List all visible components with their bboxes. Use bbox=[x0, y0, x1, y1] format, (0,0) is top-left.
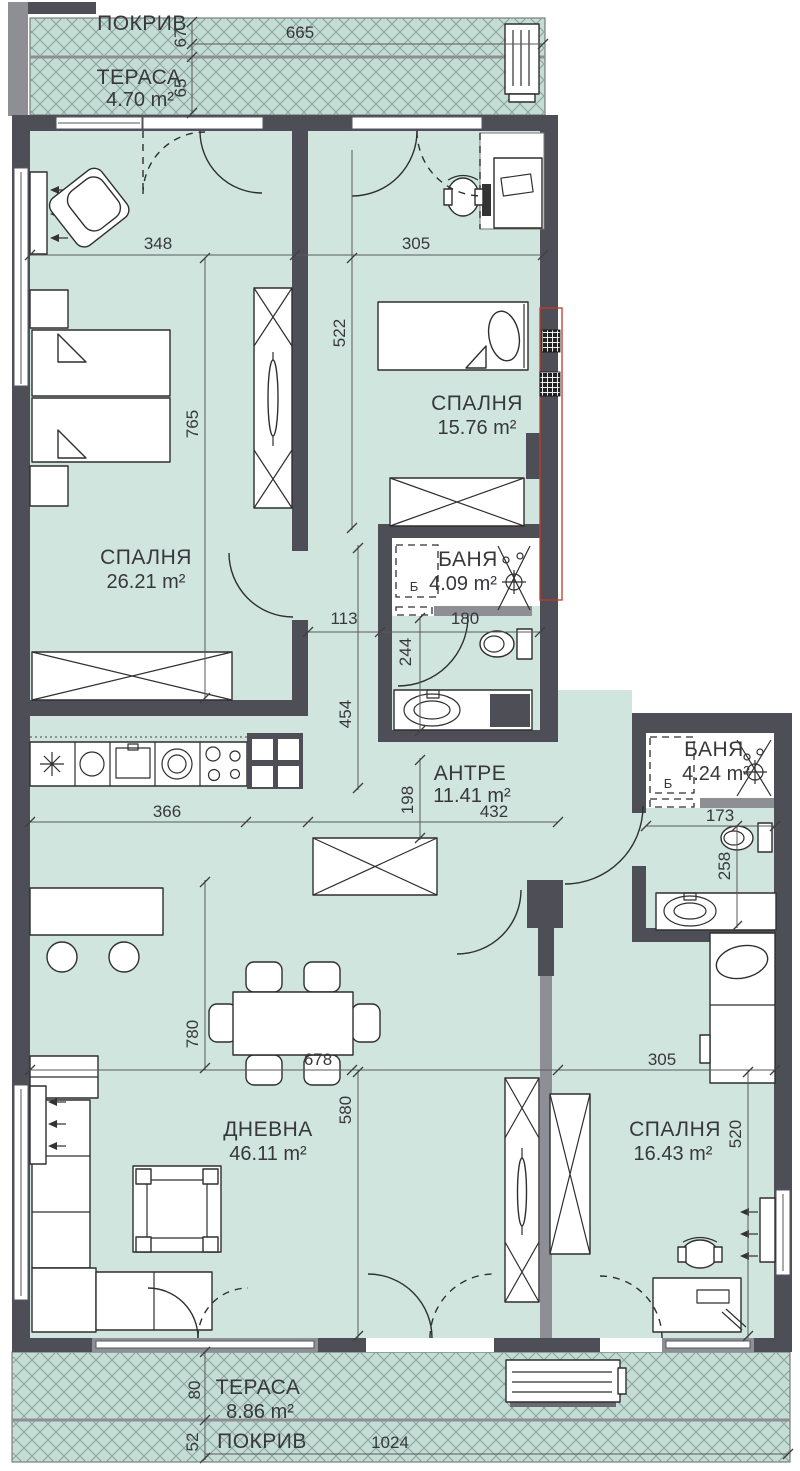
radiator-icon bbox=[30, 1086, 46, 1164]
bed-icon bbox=[378, 302, 528, 370]
dresser-icon bbox=[390, 478, 524, 526]
desk-icon bbox=[653, 1278, 746, 1332]
bed-icon bbox=[700, 933, 775, 1083]
dim-454: 454 bbox=[336, 700, 355, 728]
dim-180: 180 bbox=[451, 609, 479, 628]
dim-580: 580 bbox=[336, 1096, 355, 1124]
tall-cabinet-icon bbox=[254, 288, 292, 508]
dim-173: 173 bbox=[706, 806, 734, 825]
dim-520: 520 bbox=[726, 1120, 745, 1148]
roof-bottom-label: ПОКРИВ bbox=[217, 1430, 307, 1453]
dim-258: 258 bbox=[715, 852, 734, 880]
dim-305: 305 bbox=[402, 234, 430, 253]
dim-780: 780 bbox=[183, 1020, 202, 1048]
terrace-bottom-area: 8.86 m² bbox=[226, 1401, 294, 1423]
radiator-icon bbox=[30, 172, 47, 254]
tv-unit-icon bbox=[505, 1078, 539, 1302]
coffee-table-icon bbox=[133, 1166, 221, 1252]
dim-522: 522 bbox=[330, 319, 349, 347]
bath1-label: БАНЯ bbox=[438, 548, 498, 571]
dim-765: 765 bbox=[183, 410, 202, 438]
living-area: 46.11 m² bbox=[229, 1143, 307, 1165]
dim-244: 244 bbox=[396, 638, 415, 666]
stool-icon bbox=[47, 942, 77, 972]
bedroom3-area: 16.43 m² bbox=[634, 1143, 713, 1165]
bedroom1-area: 26.21 m² bbox=[107, 571, 186, 593]
top-terrace bbox=[8, 2, 545, 116]
wardrobe-icon bbox=[32, 652, 232, 700]
bed-icon bbox=[32, 398, 170, 462]
dim-65: 65 bbox=[171, 79, 190, 98]
nightstand-icon bbox=[30, 466, 68, 506]
ac-unit-bottom bbox=[506, 1360, 626, 1407]
ac-unit-top bbox=[505, 24, 539, 102]
dim-52: 52 bbox=[183, 1433, 202, 1452]
bedroom2-area: 15.76 m² bbox=[438, 417, 517, 439]
desk-icon bbox=[494, 158, 542, 228]
kitchen-cabinet-icon bbox=[247, 733, 303, 789]
dim-80: 80 bbox=[185, 1381, 204, 1400]
riser-icon bbox=[540, 372, 560, 396]
dim-67: 67 bbox=[171, 29, 190, 48]
dim-678: 678 bbox=[304, 1050, 332, 1069]
washer2-label: Б bbox=[664, 776, 673, 791]
bath2-label: БАНЯ bbox=[684, 738, 744, 761]
dim-198: 198 bbox=[398, 786, 417, 814]
floor-plan-page: ПОКРИВ ТЕРАСА 4.70 m² СПАЛНЯ 26.21 m² СП… bbox=[0, 0, 800, 1471]
dim-113: 113 bbox=[330, 609, 357, 628]
bath1-area: 4.09 m² bbox=[429, 573, 497, 595]
bedroom2-label: СПАЛНЯ bbox=[431, 392, 523, 415]
terrace-top-label: ТЕРАСА bbox=[97, 66, 182, 89]
wardrobe-icon bbox=[550, 1094, 590, 1254]
dim-305b: 305 bbox=[648, 1050, 676, 1069]
floor-plan: ПОКРИВ ТЕРАСА 4.70 m² СПАЛНЯ 26.21 m² СП… bbox=[0, 0, 800, 1471]
hall-closet-icon bbox=[313, 838, 437, 895]
dim-366: 366 bbox=[153, 802, 181, 821]
bedroom1-label: СПАЛНЯ bbox=[100, 546, 192, 569]
living-label: ДНЕВНА bbox=[223, 1118, 313, 1141]
riser-icon bbox=[542, 330, 560, 352]
terrace-bottom-label: ТЕРАСА bbox=[216, 1376, 301, 1399]
sink-icon bbox=[394, 690, 532, 730]
sink-icon bbox=[656, 893, 776, 930]
bath2-area: 4.24 m² bbox=[682, 763, 750, 785]
dim-432: 432 bbox=[480, 802, 508, 821]
washer1-label: Б bbox=[410, 579, 419, 594]
hall-label: АНТРЕ bbox=[434, 762, 507, 785]
terrace-top-area: 4.70 m² bbox=[106, 89, 174, 111]
dim-1024: 1024 bbox=[371, 1433, 409, 1452]
bed-icon bbox=[32, 330, 170, 396]
kitchen-island bbox=[30, 888, 163, 935]
dim-665: 665 bbox=[286, 23, 314, 42]
closet-niche bbox=[480, 133, 544, 229]
nightstand-icon bbox=[30, 290, 68, 328]
bedroom3-label: СПАЛНЯ bbox=[629, 1118, 721, 1141]
stool-icon bbox=[109, 942, 139, 972]
radiator-icon bbox=[760, 1198, 775, 1262]
toilet-icon bbox=[480, 629, 532, 659]
dim-348: 348 bbox=[144, 234, 172, 253]
